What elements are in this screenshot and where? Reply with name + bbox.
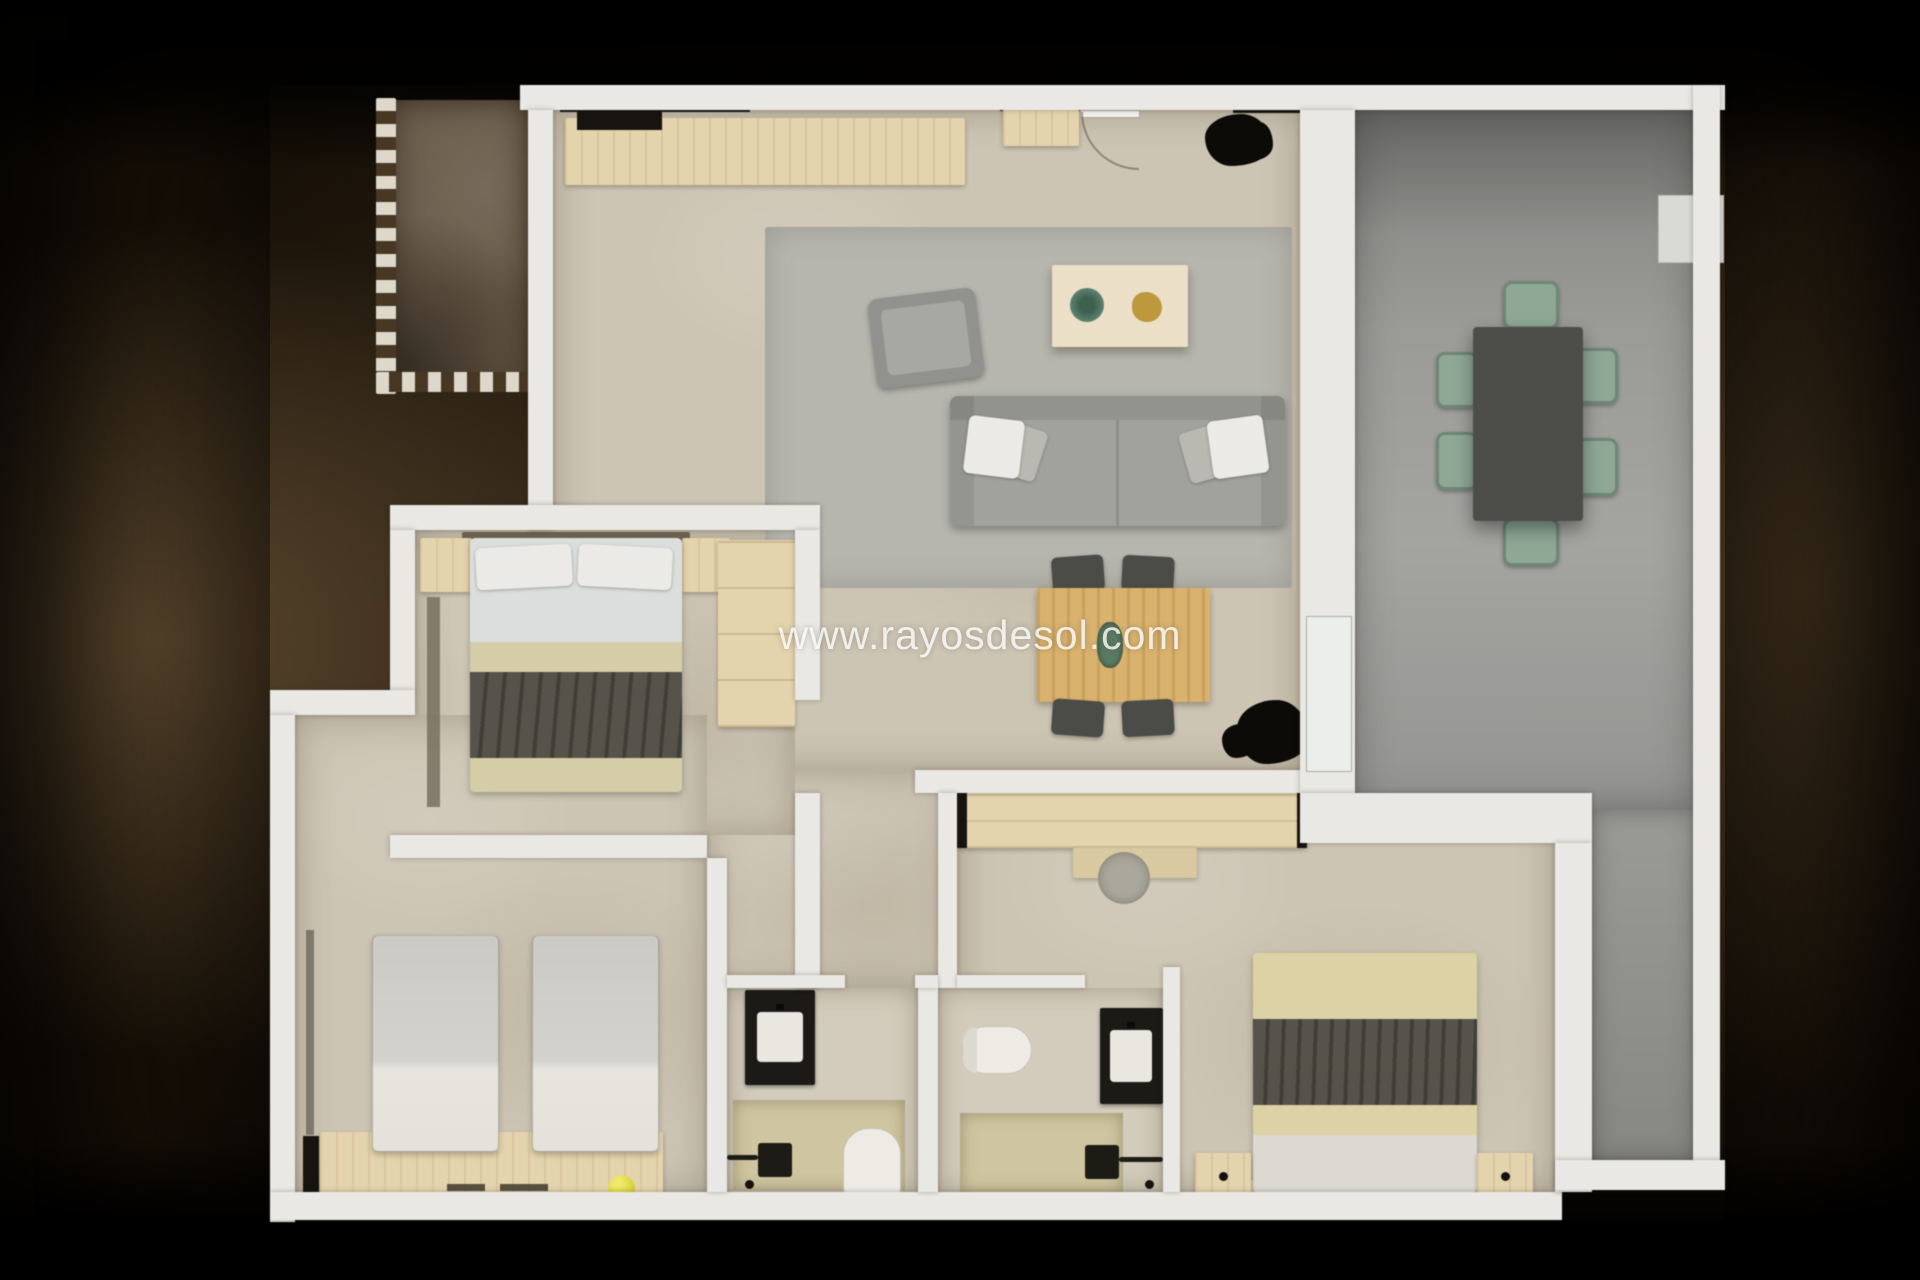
bed3-foot-sheet [1253,1135,1477,1192]
nightstand [1477,1153,1533,1197]
bathroom1-sink [757,1012,803,1062]
sofa [950,396,1285,526]
shower-head [1085,1145,1119,1179]
wall-left-lower [270,715,295,1222]
bedroom2-dark-rack [303,1136,319,1198]
wall-bedroom1-left [390,530,415,692]
terrace-strip-floor [1592,810,1695,1160]
shower-drain [745,1180,754,1189]
bench-detail [447,1184,485,1191]
sofa-cushion-seam [1116,420,1119,526]
bathroom2-shower [960,1113,1123,1192]
wall-bedroom1-bedroom2 [390,835,707,858]
outdoor-chair [1436,432,1478,490]
lamp [1219,1172,1228,1181]
bedroom2-wall-shadow [306,930,314,1135]
bench-detail [500,1184,548,1191]
wall-hallway-left [795,793,820,988]
decor-plate [1070,288,1104,322]
entry-plant-leaf [1243,122,1273,160]
sofa-backrest [950,396,1285,420]
lamp [1501,1172,1510,1181]
outdoor-chair [1503,518,1559,566]
coffee-table [1052,265,1188,347]
wall-living-bottom [915,770,1305,793]
nightstand [1195,1153,1251,1197]
balcony-railing-left [376,98,396,394]
wall-bathroom2-right [1163,967,1180,1192]
wardrobe-end-cap [957,793,967,848]
nightstand [420,538,472,592]
wall-bathroom-divider [918,988,938,1192]
toilet-tank [963,1027,977,1073]
wall-top [520,85,1725,110]
corner-plant-leaf [1222,724,1256,758]
watermark: www.rayosdesol.com [778,612,1181,659]
bedroom1-runner-rug [427,597,440,807]
round-stool [1098,852,1150,904]
wall-bedroom1-top [390,505,820,530]
outdoor-chair [1436,352,1478,408]
faucet [776,1004,784,1010]
balcony-floor [390,100,528,392]
toilet [962,1026,1032,1074]
bed3-blanket [1253,1019,1477,1105]
bed1-pillow [475,544,573,591]
wall-hallway-right [938,793,957,988]
single-bed [372,935,499,1152]
bed1-blanket [470,672,682,758]
wall-left-upper [528,110,553,530]
floorplan-screenshot: www.rayosdesol.com [0,0,1920,1280]
single-bed [532,935,659,1152]
dining-chair [1051,698,1105,738]
faucet [1127,1022,1135,1028]
wall-bedroom2-right [707,858,727,1192]
wall-step [270,690,415,715]
wall-terrace-bedroom3 [1300,793,1592,843]
wall-bedroom3-right [1555,843,1592,1192]
wall-bottom [270,1192,1562,1220]
terrace-glass-door [1306,616,1352,772]
sofa-pillow [1206,414,1270,479]
bed1-foot-band [470,758,682,792]
wall-bathroom1-top [727,975,845,988]
bathroom2-sink [1110,1030,1152,1082]
double-bed [1253,953,1477,1192]
wall-right-outer [1693,85,1720,1160]
double-bed [470,538,682,792]
bed1-sheet-band [470,642,682,672]
toilet [843,1128,901,1198]
wall-bathroom1-top-b [915,975,938,988]
kitchen-cabinet [1003,104,1079,146]
dining-chair [1121,699,1175,738]
wall-bottom-right [1555,1160,1725,1190]
terrace-top-shade [1355,105,1695,235]
shower-arm [727,1155,758,1160]
outdoor-dining-table [1473,327,1583,521]
shower-arm [1119,1157,1163,1162]
sofa-pillow [963,415,1026,479]
bedroom3-wardrobe [957,793,1307,848]
wall-bathroom2-top [957,975,1085,988]
balcony-railing-bottom [376,372,528,392]
decor-gold-object [1132,292,1162,322]
bathroom1-vanity [745,990,815,1085]
armchair-seat [880,300,971,376]
outdoor-chair [1503,281,1559,329]
bathroom2-vanity [1100,1008,1163,1104]
shower-drain [1145,1180,1154,1189]
armchair [867,287,985,389]
bed1-pillow [577,544,673,591]
shower-head [758,1143,792,1177]
